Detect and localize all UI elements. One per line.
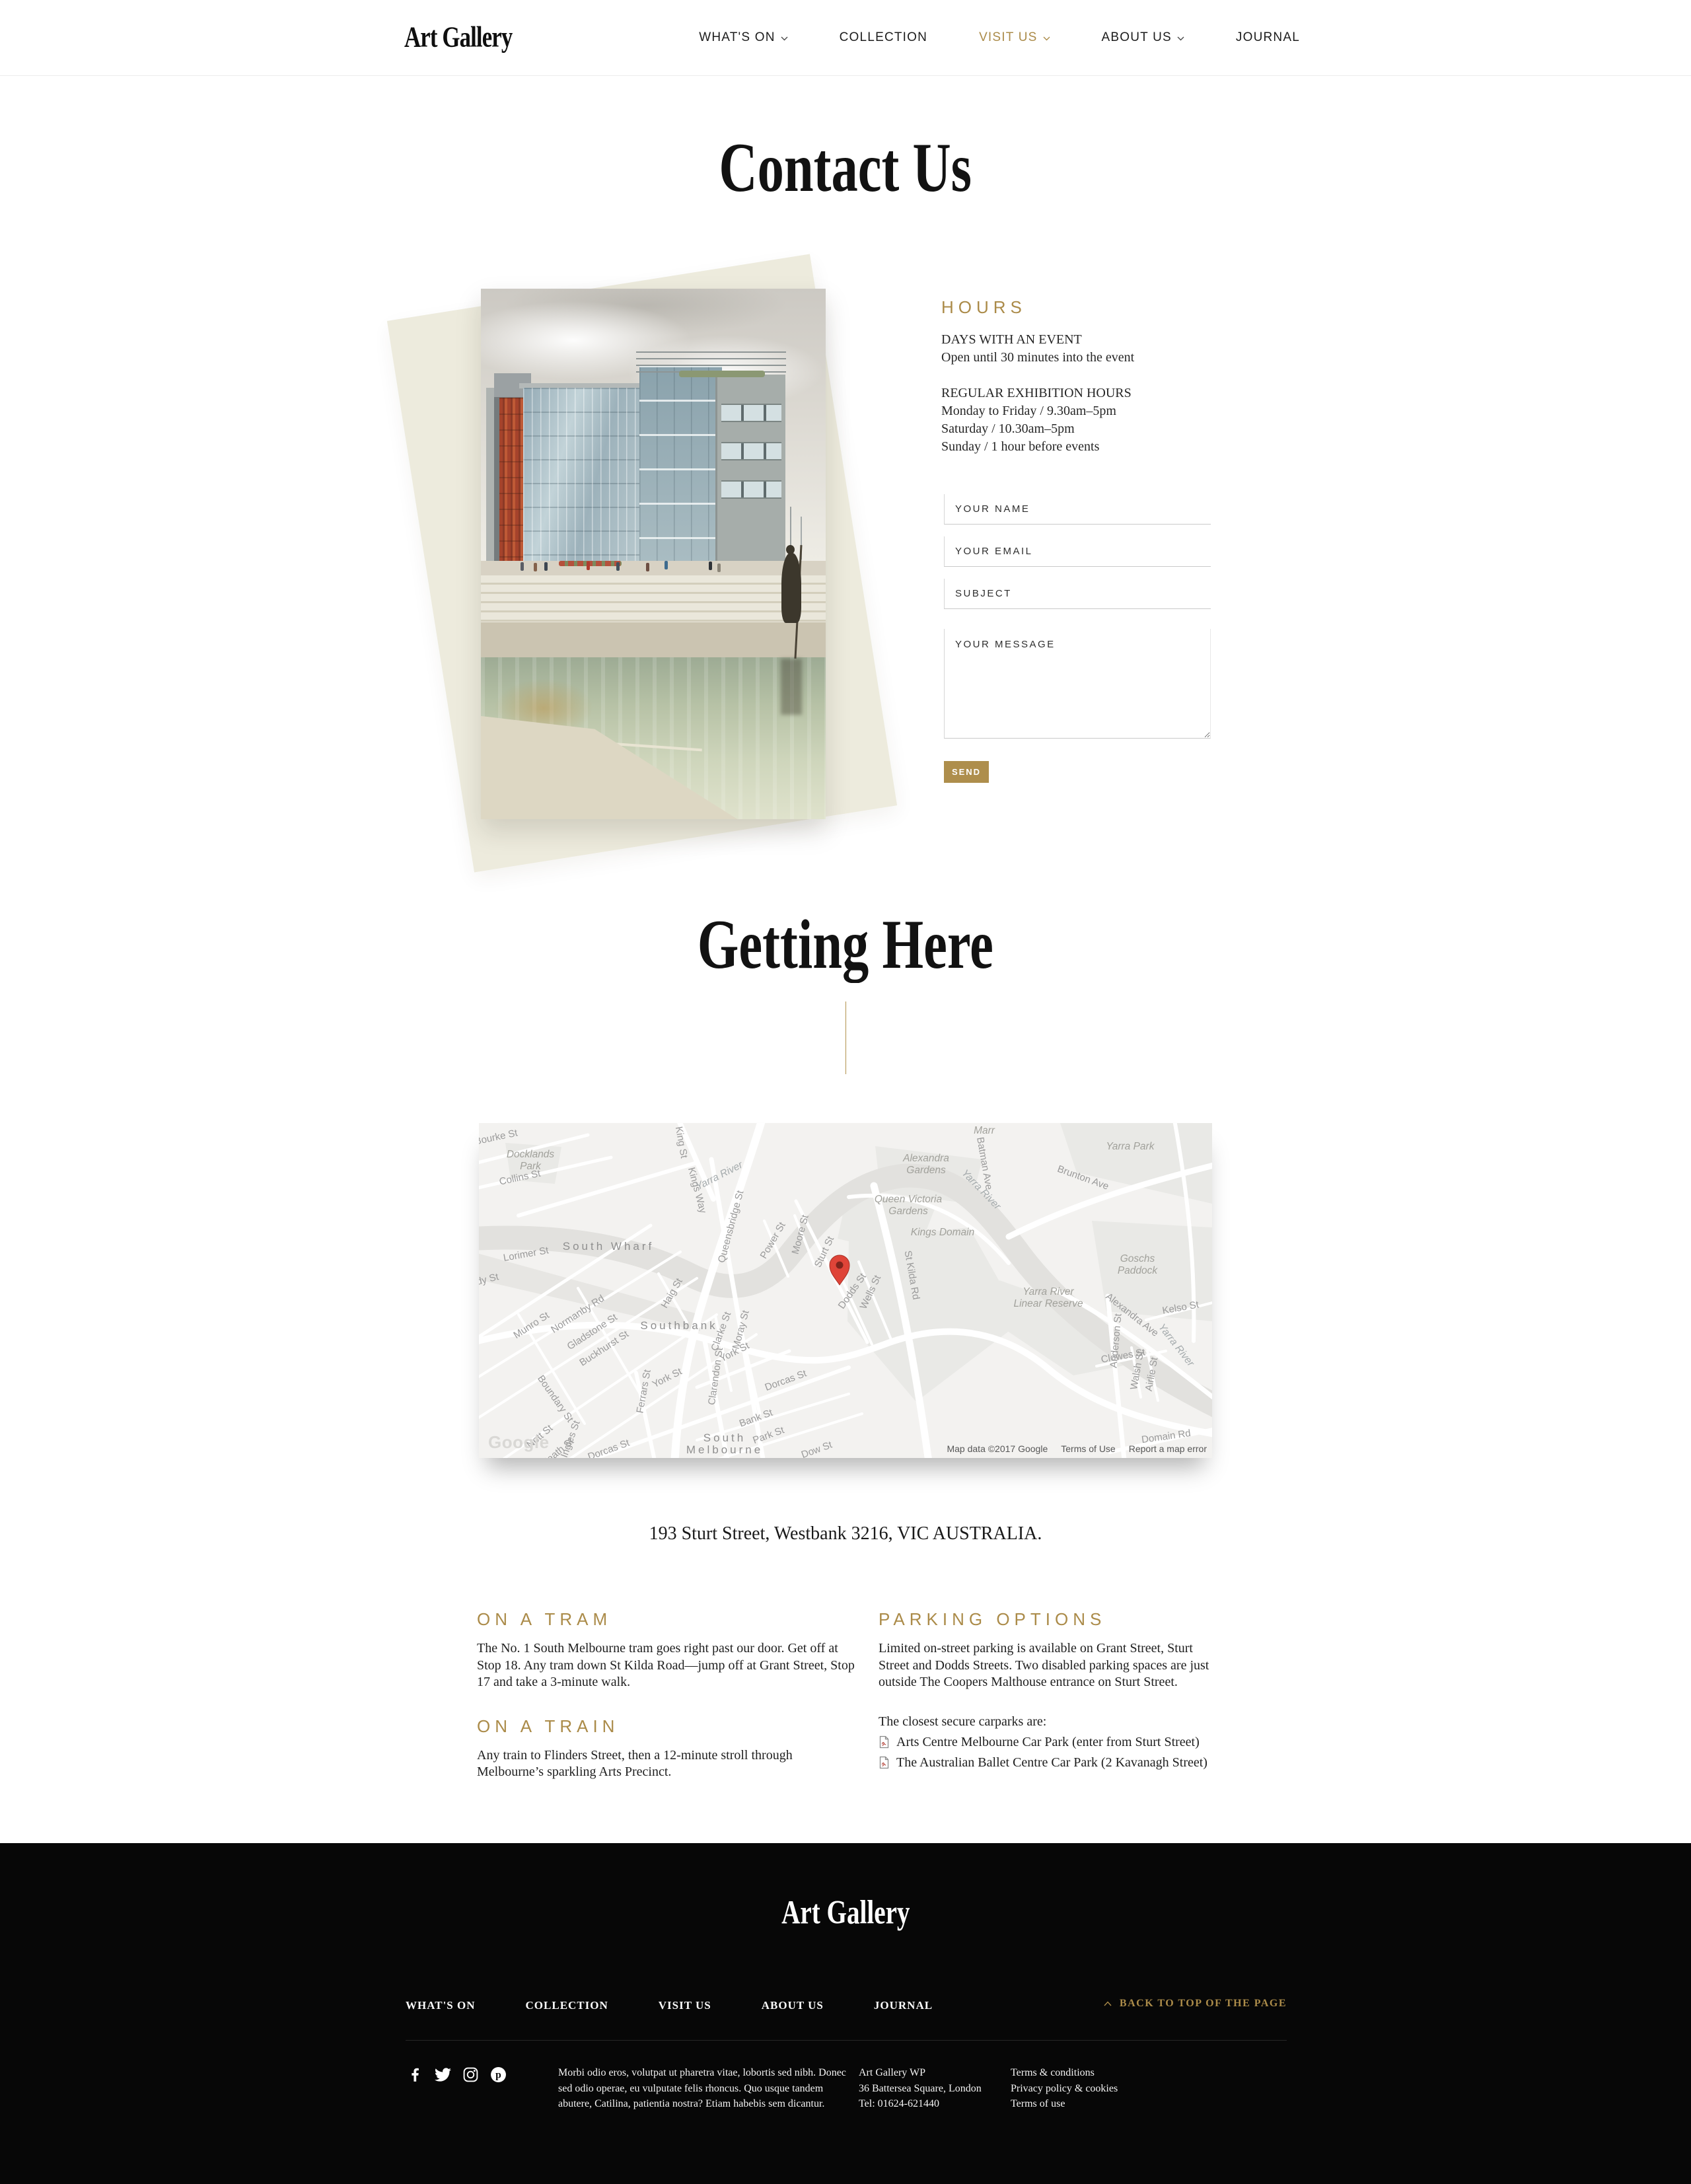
footer-legal-links: Terms & conditionsPrivacy policy & cooki… xyxy=(1011,2065,1118,2112)
photo-person xyxy=(709,562,712,570)
chevron-down-icon xyxy=(781,36,788,41)
map-label: AlexandraGardens xyxy=(902,1153,949,1176)
hours-line: Open until 30 minutes into the event xyxy=(941,349,1219,367)
photo-person xyxy=(544,562,548,571)
footer-address-line-36-battersea-square-london: 36 Battersea Square, London xyxy=(859,2081,982,2097)
map-label: Yarra RiverLinear Reserve xyxy=(1013,1286,1083,1309)
footer-nav-what-s-on[interactable]: WHAT'S ON xyxy=(406,1999,476,2012)
photo-statue-reflection xyxy=(781,659,802,715)
footer-nav-about-us[interactable]: ABOUT US xyxy=(762,1999,824,2012)
gallery-building-photo xyxy=(481,289,826,819)
tram-text: The No. 1 South Melbourne tram goes righ… xyxy=(477,1640,857,1691)
carpark-text: The Australian Ballet Centre Car Park (2… xyxy=(896,1754,1207,1771)
footer-about-text: Morbi odio eros, volutpat ut pharetra vi… xyxy=(558,2065,846,2112)
carpark-text: Arts Centre Melbourne Car Park (enter fr… xyxy=(896,1733,1200,1751)
footer-address: Art Gallery WP36 Battersea Square, Londo… xyxy=(859,2065,982,2112)
carpark-item: Arts Centre Melbourne Car Park (enter fr… xyxy=(879,1733,1219,1751)
footer-legal-link-terms-of-use[interactable]: Terms of use xyxy=(1011,2096,1118,2112)
photo-person xyxy=(616,562,620,571)
carpark-item: The Australian Ballet Centre Car Park (2… xyxy=(879,1754,1219,1771)
photo-wall xyxy=(481,622,826,660)
header: Art Gallery WHAT'S ONCOLLECTIONVISIT USA… xyxy=(0,0,1691,76)
instagram-link[interactable] xyxy=(462,2066,479,2083)
footer-social: p xyxy=(407,2066,507,2083)
footer-divider xyxy=(406,2040,1287,2041)
carpark-link-arts-centre-melbourne-car-park[interactable]: Arts Centre Melbourne Car Park xyxy=(896,1735,1069,1749)
chevron-up-icon xyxy=(1104,2001,1112,2006)
nav-item-collection[interactable]: COLLECTION xyxy=(840,30,927,45)
nav-item-what-s-on[interactable]: WHAT'S ON xyxy=(699,30,787,45)
hours-lines: DAYS WITH AN EVENTOpen until 30 minutes … xyxy=(941,331,1219,456)
your-name-input[interactable] xyxy=(944,494,1211,525)
footer-address-line-art-gallery-wp: Art Gallery WP xyxy=(859,2065,982,2081)
parking-text: Limited on-street parking is available o… xyxy=(879,1640,1219,1691)
map-link-terms-of-use[interactable]: Terms of Use xyxy=(1061,1443,1115,1454)
send-button[interactable]: SEND xyxy=(944,761,989,783)
hours-group: REGULAR EXHIBITION HOURSMonday to Friday… xyxy=(941,384,1219,456)
carparks-list: Arts Centre Melbourne Car Park (enter fr… xyxy=(879,1733,1219,1771)
pdf-file-icon xyxy=(879,1756,890,1769)
hours-line: Sunday / 1 hour before events xyxy=(941,438,1219,456)
map-data-credit: Map data ©2017 Google xyxy=(947,1443,1048,1454)
page-title: Contact Us xyxy=(0,129,1691,207)
carpark-note: (enter from Sturt Street) xyxy=(1069,1735,1200,1749)
footer-logo: Art Gallery xyxy=(0,1895,1691,1930)
carparks-intro: The closest secure carparks are: xyxy=(879,1714,1219,1731)
photo-statue xyxy=(786,545,795,554)
photo-building-concrete xyxy=(715,375,785,561)
photo-person xyxy=(587,562,590,570)
map-attribution: Map data ©2017 GoogleTerms of UseReport … xyxy=(947,1443,1207,1454)
map-label: South Wharf xyxy=(563,1240,655,1253)
photo-person xyxy=(521,562,524,571)
hours-section: HOURS DAYS WITH AN EVENTOpen until 30 mi… xyxy=(941,297,1219,474)
hours-line: DAYS WITH AN EVENT xyxy=(941,331,1219,349)
map-label: Kings Domain xyxy=(911,1227,975,1238)
footer-address-line-tel-01624-621440: Tel: 01624-621440 xyxy=(859,2096,982,2112)
photo-steps xyxy=(481,575,826,622)
nav-label: WHAT'S ON xyxy=(699,30,775,45)
subject-input[interactable] xyxy=(944,579,1211,609)
site-logo[interactable]: Art Gallery xyxy=(404,19,512,54)
nav-label: JOURNAL xyxy=(1236,30,1300,45)
carpark-link-the-australian-ballet-centre-car-park[interactable]: The Australian Ballet Centre Car Park xyxy=(896,1755,1098,1770)
nav-item-about-us[interactable]: ABOUT US xyxy=(1102,30,1184,45)
photo-windows xyxy=(721,404,781,422)
photo-windows xyxy=(721,480,781,499)
map-canvas: Bourke StCollins StLorimer Stady StKing … xyxy=(479,1123,1212,1458)
google-logo[interactable]: Google xyxy=(488,1432,550,1453)
section-divider-line xyxy=(845,1001,846,1074)
facebook-icon xyxy=(407,2066,423,2083)
hours-line: Monday to Friday / 9.30am–5pm xyxy=(941,402,1219,420)
nav-item-visit-us[interactable]: VISIT US xyxy=(979,30,1050,45)
footer-legal-link-terms-conditions[interactable]: Terms & conditions xyxy=(1011,2065,1118,2081)
instagram-icon xyxy=(462,2066,479,2083)
map[interactable]: Bourke StCollins StLorimer Stady StKing … xyxy=(479,1123,1212,1458)
chevron-down-icon xyxy=(1177,36,1184,41)
photo-person xyxy=(534,563,537,571)
your-email-input[interactable] xyxy=(944,536,1211,567)
travel-left-column: ON A TRAM The No. 1 South Melbourne tram… xyxy=(477,1609,857,1781)
parking-heading: PARKING OPTIONS xyxy=(879,1609,1219,1630)
photo-building-glass-facade xyxy=(523,388,639,561)
photo-windows xyxy=(721,442,781,460)
map-label: GoschsPaddock xyxy=(1118,1253,1159,1276)
contact-form: SEND xyxy=(944,494,1211,783)
pdf-file-icon xyxy=(879,1735,890,1749)
footer-nav-collection[interactable]: COLLECTION xyxy=(526,1999,608,2012)
photo-building-glass-tower xyxy=(639,365,722,561)
train-text: Any train to Flinders Street, then a 12-… xyxy=(477,1747,857,1781)
pinterest-icon: p xyxy=(490,2066,507,2083)
hours-heading: HOURS xyxy=(941,297,1219,318)
hours-line: Saturday / 10.30am–5pm xyxy=(941,420,1219,438)
photo-person xyxy=(646,563,649,571)
photo-flower-planters xyxy=(559,561,622,566)
hours-line: REGULAR EXHIBITION HOURS xyxy=(941,384,1219,402)
footer-about-line-sed-odio-operae-eu-vulputate-f: sed odio operae, eu vulputate felis rhon… xyxy=(558,2081,846,2097)
photo-statue xyxy=(781,553,801,623)
nav-item-journal[interactable]: JOURNAL xyxy=(1236,30,1300,45)
hours-group: DAYS WITH AN EVENTOpen until 30 minutes … xyxy=(941,331,1219,367)
nav-label: COLLECTION xyxy=(840,30,927,45)
photo-person xyxy=(665,561,668,569)
back-to-top-label: BACK TO TOP OF THE PAGE xyxy=(1120,1998,1287,2010)
footer: Art Gallery WHAT'S ONCOLLECTIONVISIT USA… xyxy=(0,1843,1691,2184)
back-to-top-link[interactable]: BACK TO TOP OF THE PAGE xyxy=(1104,1998,1287,2010)
footer-legal-link-privacy-policy-cookies[interactable]: Privacy policy & cookies xyxy=(1011,2081,1118,2097)
nav-label: ABOUT US xyxy=(1102,30,1172,45)
train-heading: ON A TRAIN xyxy=(477,1716,857,1737)
pinterest-link[interactable]: p xyxy=(490,2066,507,2083)
facebook-link[interactable] xyxy=(407,2066,423,2083)
footer-nav-visit-us[interactable]: VISIT US xyxy=(659,1999,711,2012)
nav-label: VISIT US xyxy=(979,30,1037,45)
message-input[interactable] xyxy=(944,629,1211,739)
footer-about-line-morbi-odio-eros-volutpat-ut-ph: Morbi odio eros, volutpat ut pharetra vi… xyxy=(558,2065,846,2081)
footer-nav-journal[interactable]: JOURNAL xyxy=(874,1999,933,2012)
twitter-icon xyxy=(435,2066,451,2083)
photo-plaza xyxy=(481,561,826,575)
map-label: Marr xyxy=(974,1125,995,1136)
footer-about-line-abutere-catilina-patientia-nos: abutere, Catilina, patientia nostra? Eti… xyxy=(558,2096,846,2112)
tram-heading: ON A TRAM xyxy=(477,1609,857,1630)
photo-roof-plants xyxy=(679,371,765,377)
photo-person xyxy=(717,564,721,572)
map-label: Southbank xyxy=(640,1319,717,1332)
map-label: Yarra Park xyxy=(1106,1141,1155,1152)
street-address: 193 Sturt Street, Westbank 3216, VIC AUS… xyxy=(0,1523,1691,1545)
getting-here-title: Getting Here xyxy=(0,906,1691,984)
chevron-down-icon xyxy=(1043,36,1050,41)
svg-text:p: p xyxy=(495,2070,501,2081)
footer-nav: WHAT'S ONCOLLECTIONVISIT USABOUT USJOURN… xyxy=(406,1999,933,2012)
main-nav: WHAT'S ONCOLLECTIONVISIT USABOUT USJOURN… xyxy=(699,0,1300,75)
carpark-note: (2 Kavanagh Street) xyxy=(1098,1755,1207,1770)
twitter-link[interactable] xyxy=(435,2066,451,2083)
travel-right-column: PARKING OPTIONS Limited on-street parkin… xyxy=(879,1609,1219,1771)
map-link-report-a-map-error[interactable]: Report a map error xyxy=(1129,1443,1207,1454)
